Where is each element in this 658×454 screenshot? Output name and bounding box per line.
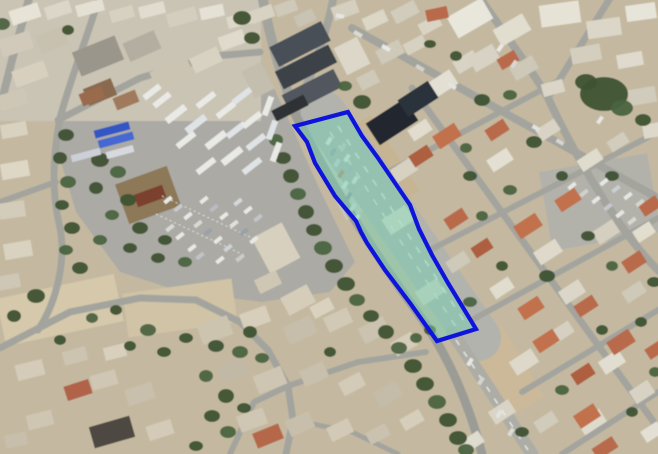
tree-72 [140, 324, 156, 336]
tree-51 [503, 185, 517, 195]
tree-73 [179, 333, 193, 343]
tree-33 [93, 235, 107, 245]
tree-35 [151, 253, 165, 263]
tree-10 [363, 310, 379, 322]
tree-67 [424, 40, 436, 48]
tree-77 [124, 341, 136, 351]
tree-4 [298, 205, 314, 219]
tree-61 [596, 325, 608, 335]
tree-87 [255, 353, 269, 363]
tree-89 [324, 347, 336, 357]
tree-9 [349, 294, 365, 306]
tree-90 [410, 333, 422, 343]
tree-60 [463, 297, 477, 307]
tree-5 [306, 224, 322, 236]
aerial-imagery-layer [0, 0, 658, 454]
tree-63 [555, 385, 569, 395]
tree-8 [337, 277, 355, 291]
tree-6 [314, 241, 332, 255]
tree-2 [283, 169, 299, 183]
tree-16 [439, 413, 457, 427]
tree-46 [635, 114, 651, 126]
tree-55 [581, 231, 595, 241]
tree-42 [338, 81, 352, 91]
tree-20 [53, 152, 67, 164]
tree-17 [449, 431, 467, 445]
tree-40 [62, 25, 74, 35]
tree-70 [27, 289, 45, 303]
tree-14 [416, 377, 434, 391]
tree-50 [463, 171, 477, 181]
tree-7 [325, 259, 343, 273]
tree-71 [7, 310, 21, 322]
tree-81 [220, 426, 236, 438]
tree-22 [55, 200, 69, 210]
tree-48 [503, 90, 517, 100]
tree-62 [635, 317, 647, 327]
tree-15 [428, 395, 446, 409]
tree-19 [58, 129, 74, 141]
tree-45 [611, 100, 633, 116]
tree-74 [208, 340, 224, 352]
tree-32 [158, 235, 172, 245]
tree-28 [89, 182, 103, 194]
tree-75 [232, 346, 248, 358]
tree-30 [105, 210, 119, 220]
tree-11 [378, 325, 394, 339]
tree-59 [496, 261, 508, 271]
satellite-map-canvas[interactable] [0, 0, 658, 454]
tree-88 [243, 326, 257, 338]
tree-13 [404, 359, 422, 373]
tree-25 [72, 262, 88, 274]
tree-68 [450, 51, 462, 61]
tree-29 [120, 194, 136, 206]
tree-37 [233, 11, 251, 25]
tree-31 [132, 222, 148, 234]
tree-23 [64, 222, 80, 234]
tree-86 [54, 335, 66, 345]
tree-21 [60, 176, 76, 188]
tree-38 [244, 32, 260, 44]
tree-12 [391, 342, 407, 354]
tree-78 [199, 370, 213, 382]
tree-57 [606, 261, 618, 271]
tree-41 [353, 95, 371, 109]
tree-44 [575, 74, 597, 90]
tree-54 [476, 211, 488, 221]
tree-27 [110, 166, 126, 178]
tree-84 [86, 313, 98, 323]
tree-65 [626, 407, 638, 417]
tree-47 [474, 94, 490, 106]
tree-80 [204, 410, 220, 422]
satellite-map-stage [0, 0, 658, 454]
tree-34 [123, 243, 137, 253]
tree-24 [59, 245, 73, 255]
tree-82 [189, 441, 203, 451]
tree-64 [515, 427, 529, 437]
tree-36 [178, 257, 192, 267]
tree-49 [526, 136, 542, 148]
tree-76 [157, 347, 171, 357]
tree-83 [237, 403, 251, 413]
tree-52 [556, 171, 568, 181]
tree-56 [539, 270, 555, 282]
tree-69 [460, 143, 472, 153]
tree-79 [218, 389, 234, 403]
tree-85 [110, 305, 122, 315]
tree-3 [290, 188, 306, 200]
